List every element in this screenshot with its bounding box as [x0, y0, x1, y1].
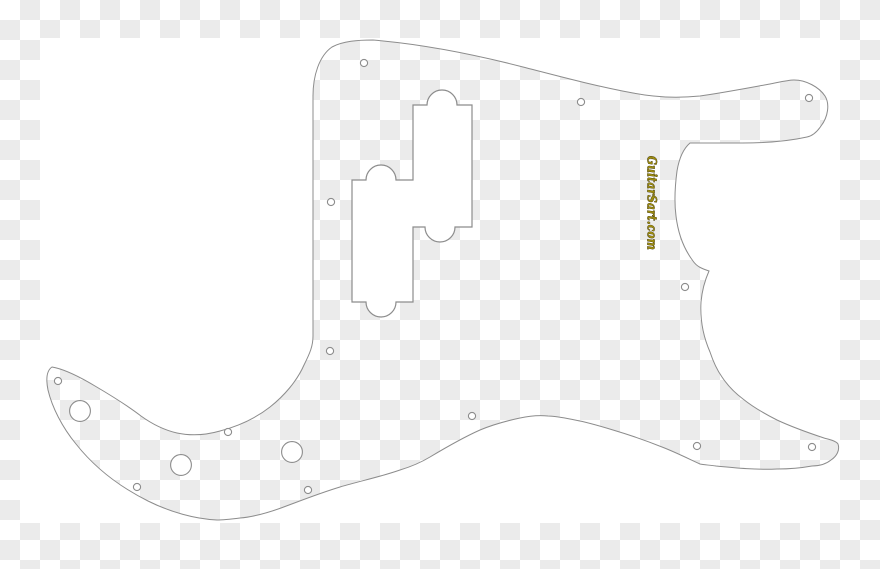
control-hole [282, 442, 303, 463]
screw-hole [133, 483, 140, 490]
screw-hole [360, 59, 367, 66]
screw-hole [681, 283, 688, 290]
screw-hole [808, 443, 815, 450]
screw-hole [805, 94, 812, 101]
control-hole [70, 401, 91, 422]
watermark-text: GuitarSart.com [644, 156, 659, 250]
pickup-rout-cutout [352, 90, 472, 317]
screw-hole [693, 442, 700, 449]
screw-hole [326, 347, 333, 354]
screw-hole [327, 198, 334, 205]
screw-hole [468, 412, 475, 419]
control-hole [171, 455, 192, 476]
screw-hole [577, 98, 584, 105]
pickguard-template-image: GuitarSart.com [0, 0, 880, 569]
screw-hole [54, 377, 61, 384]
transparency-checkerboard: GuitarSart.com [0, 0, 880, 569]
screw-hole [224, 428, 231, 435]
screw-hole [304, 486, 311, 493]
